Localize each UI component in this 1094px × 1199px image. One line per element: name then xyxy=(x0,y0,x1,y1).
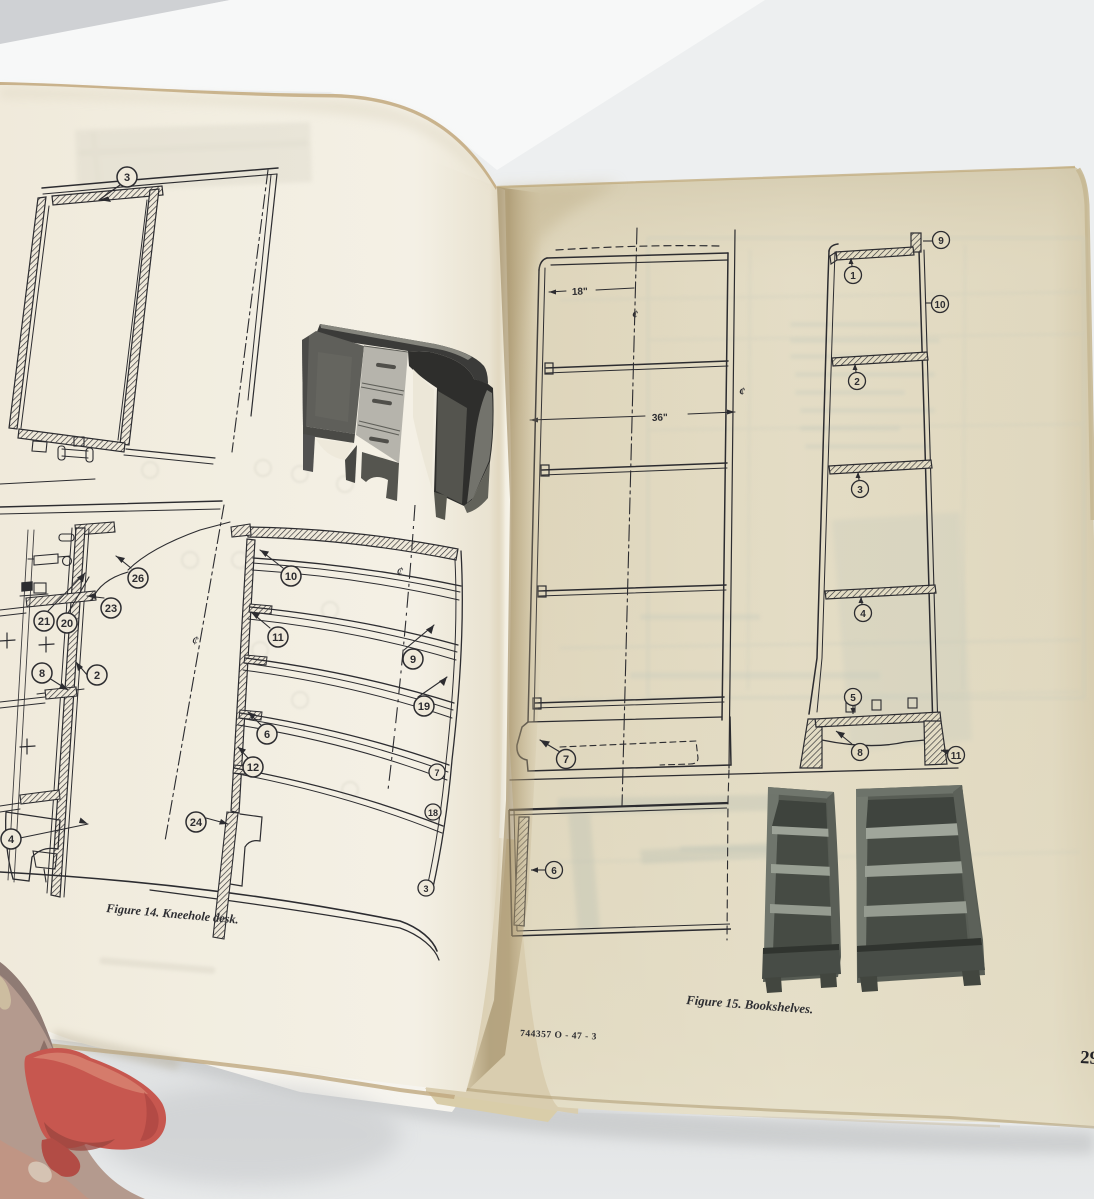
svg-text:¢: ¢ xyxy=(739,384,745,398)
svg-text:10: 10 xyxy=(285,571,297,583)
svg-text:7: 7 xyxy=(563,754,569,766)
svg-text:1: 1 xyxy=(850,271,856,282)
svg-text:2: 2 xyxy=(94,670,100,682)
svg-text:24: 24 xyxy=(190,817,203,829)
svg-text:3: 3 xyxy=(857,485,863,496)
svg-text:4: 4 xyxy=(8,834,15,846)
svg-text:8: 8 xyxy=(857,748,863,759)
svg-text:11: 11 xyxy=(272,632,284,644)
svg-text:4: 4 xyxy=(860,609,866,620)
svg-text:21: 21 xyxy=(38,616,50,628)
svg-text:7: 7 xyxy=(434,768,439,778)
svg-text:10: 10 xyxy=(934,300,946,311)
svg-text:23: 23 xyxy=(105,603,117,615)
svg-text:5: 5 xyxy=(850,693,856,704)
svg-text:18": 18" xyxy=(572,286,588,298)
svg-text:26: 26 xyxy=(132,573,144,585)
svg-text:29: 29 xyxy=(1080,1048,1094,1069)
svg-text:11: 11 xyxy=(951,751,962,762)
svg-text:12: 12 xyxy=(247,762,259,774)
svg-text:20: 20 xyxy=(61,618,73,630)
svg-text:¢: ¢ xyxy=(632,307,638,321)
svg-text:9: 9 xyxy=(938,236,944,247)
svg-text:19: 19 xyxy=(418,701,430,713)
svg-text:18: 18 xyxy=(428,808,438,818)
svg-text:3: 3 xyxy=(423,884,428,894)
svg-text:6: 6 xyxy=(264,729,270,741)
svg-text:2: 2 xyxy=(854,377,860,388)
svg-text:8: 8 xyxy=(39,668,45,680)
svg-text:36": 36" xyxy=(652,412,668,424)
svg-text:6: 6 xyxy=(551,866,557,877)
svg-text:3: 3 xyxy=(124,172,130,184)
svg-text:9: 9 xyxy=(410,654,416,666)
